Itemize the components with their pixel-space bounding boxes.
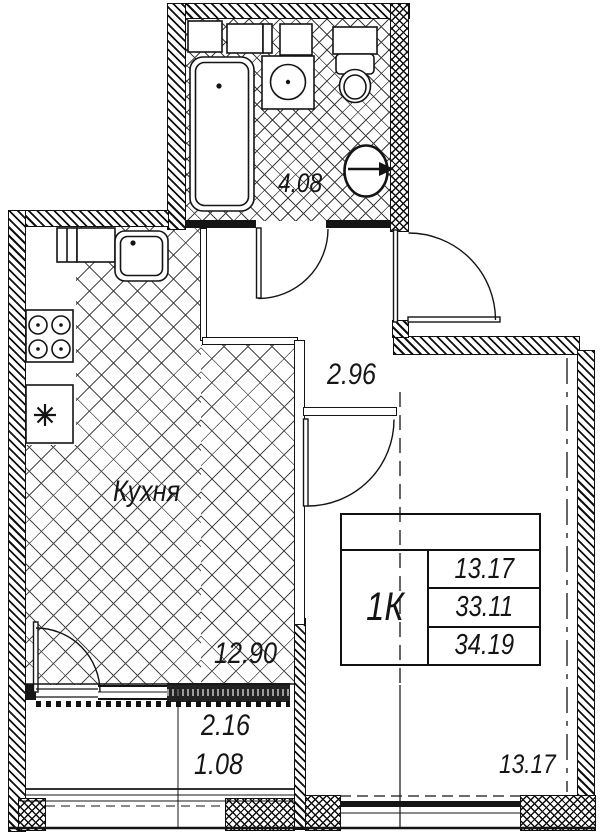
bathroom-cabinets (188, 21, 312, 55)
balcony-area-label: 2.16 (201, 711, 250, 741)
room-area-label: 13.17 (499, 751, 556, 778)
washing-machine (262, 56, 314, 109)
bathroom-area-label: 4.08 (278, 170, 322, 197)
hallway-area-label: 2.96 (327, 360, 376, 390)
balcony-area-reduced-label: 1.08 (194, 750, 243, 780)
balcony-glazing (20, 789, 294, 806)
extractor-fan-icon (345, 146, 395, 197)
bathtub (190, 57, 254, 211)
kitchen-area-label: 12.90 (214, 639, 277, 669)
toilet (336, 54, 374, 103)
entry-door (394, 230, 501, 322)
stove (26, 310, 73, 362)
room-door (304, 419, 395, 506)
bathroom-door (257, 228, 329, 299)
room-window-lines (340, 796, 520, 813)
bathroom-sink (333, 27, 377, 54)
fridge-symbol (26, 385, 73, 443)
kitchen-name-label: Кухня (113, 477, 180, 507)
kitchen-sink (115, 231, 168, 281)
balcony-door (34, 622, 101, 697)
plan-linework (0, 0, 600, 833)
floor-plan: 1К 13.17 33.11 34.19 (0, 0, 600, 833)
kitchen-cabinets (57, 228, 115, 262)
